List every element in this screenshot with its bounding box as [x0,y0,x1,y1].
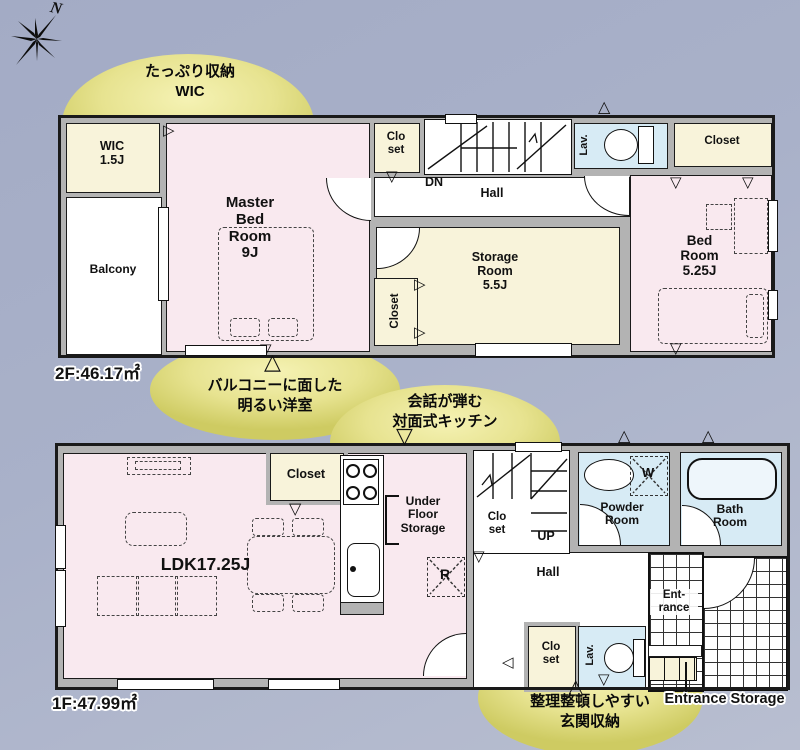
door-marker-1f-closet-lower: ◁ [502,655,514,670]
kitchen-wall [340,602,384,615]
stairs-dn-label: DN [414,175,454,189]
door-marker-2f-bedroom-b: ▽ [742,175,754,190]
hall-1f-label: Hall [518,565,578,579]
room-label-1f-ldk: LDK17.25J [128,555,283,575]
burner-icon [346,464,360,478]
floorplan-page: N たっぷり収納 WIC バルコニーに面した 明るい洋室 会話が弾む 対面式キッ… [0,0,800,750]
room-label-1f-powder: Powder Room [586,501,658,528]
room-label-2f-master-bedroom: Master Bed Room 9J [195,195,305,262]
under-floor-storage-label: Under Floor Storage [390,495,456,535]
toilet-bowl-1f [604,643,634,673]
toilet-bowl-2f [604,129,638,161]
callout-pointer-kitchen: ▽ [396,426,413,448]
stove-icon [343,459,379,505]
floor2-area-label: 2F:46.17㎡ [55,364,215,383]
door-marker-2f-bedroom-a: ▽ [670,175,682,190]
callout-pointer-entrance: △ [568,676,583,696]
dining-chair [292,594,324,612]
door-marker-2f-closet-mid-b: ▷ [414,325,426,340]
pillow-bedroom [746,294,764,338]
room-label-2f-balcony: Balcony [66,263,160,276]
room-label-2f-closet-right: Closet [674,135,770,148]
sofa-seat [175,576,217,616]
tv [135,461,181,470]
window-2f-bedroom-a [768,200,778,252]
sofa-seat [97,576,139,616]
window-2f-balcony-door [158,207,169,301]
toilet-tank-1f [633,639,645,677]
entrance-shoe-storage [649,657,697,681]
room-label-2f-bedroom: Bed Room 5.25J [652,233,747,278]
door-marker-2f-wic: ▷ [163,123,175,138]
window-1f-ldk-a [55,525,66,569]
dining-chair [252,518,284,536]
window-2f-master-south [185,345,267,356]
floor1-area-label: 1F:47.99㎡ [52,694,212,713]
room-label-1f-closet: Closet [270,467,342,481]
door-marker-1f-closet-upper: ▽ [473,549,485,564]
door-marker-2f-lav-top: △ [598,99,610,115]
hall-2f-label: Hall [462,186,522,200]
callout-pointer-balcony: △ [264,352,281,374]
burner-icon [363,486,377,500]
entrance-storage-label: Entrance Storage [652,691,797,707]
room-label-1f-closet-upper: Clo set [474,511,520,537]
burner-icon [363,464,377,478]
washbasin-icon [584,459,634,491]
room-label-1f-lav: Lav. [584,635,596,675]
room-label-1f-bath: Bath Room [694,503,766,530]
dining-chair [292,518,324,536]
floor1-plan: LDK17.25J Closet ▽ Under Floor Storage R [55,443,790,690]
toilet-tank-2f [638,126,654,164]
room-label-2f-wic: WIC 1.5J [66,139,158,167]
window-2f-storage-south [475,343,572,357]
coffee-table [125,512,187,546]
entrance-label: Ent- rance [650,589,698,615]
burner-icon [346,486,360,500]
pillow [268,318,298,337]
refrigerator-label: R [427,567,463,583]
room-label-2f-closet-mid: Closet [389,281,401,341]
window-1f-south-b [268,679,340,690]
room-label-1f-closet-lower: Clo set [528,641,574,667]
washer-label: W [630,466,666,481]
door-marker-1f-lav-bottom: ▽ [598,672,610,687]
door-marker-1f-bath-top: △ [702,428,714,444]
window-1f-ldk-b [55,570,66,627]
window-2f-bedroom-b [768,290,778,320]
bathtub-icon [687,458,777,500]
room-label-2f-storage: Storage Room 5.5J [440,250,550,292]
callout-text-entrance: 整理整頓しやすい 玄関収納 [505,692,675,731]
callout-text-kitchen: 会話が弾む 対面式キッチン [350,392,540,431]
pillow [230,318,260,337]
stairs-2f [424,119,572,175]
door-marker-1f-closet: ▽ [289,501,301,517]
door-marker-2f-bedroom-c: ▽ [670,341,682,356]
sofa-seat [136,576,178,616]
door-marker-2f-closet-mid-a: ▷ [414,277,426,292]
room-label-2f-closet-top: Clo set [374,131,418,157]
window-1f-south-a [117,679,214,690]
entrance-storage-pointer [685,662,687,692]
door-marker-2f-closet-top: ▽ [386,169,398,184]
door-marker-1f-powder-top: △ [618,428,630,444]
room-label-2f-lav: Lav. [578,125,590,165]
stairs-up-label: UP [526,529,566,543]
callout-text-wic: たっぷり収納 WIC [100,62,280,101]
floor2-plan: WIC 1.5J Balcony Master Bed Room 9J ▷ ▽ … [58,115,775,358]
chair-bedroom [706,204,732,230]
dining-chair [252,594,284,612]
window-1f-north [515,442,562,452]
window-2f-north [445,114,477,124]
faucet-icon [350,566,356,572]
entrance-step [648,645,702,657]
